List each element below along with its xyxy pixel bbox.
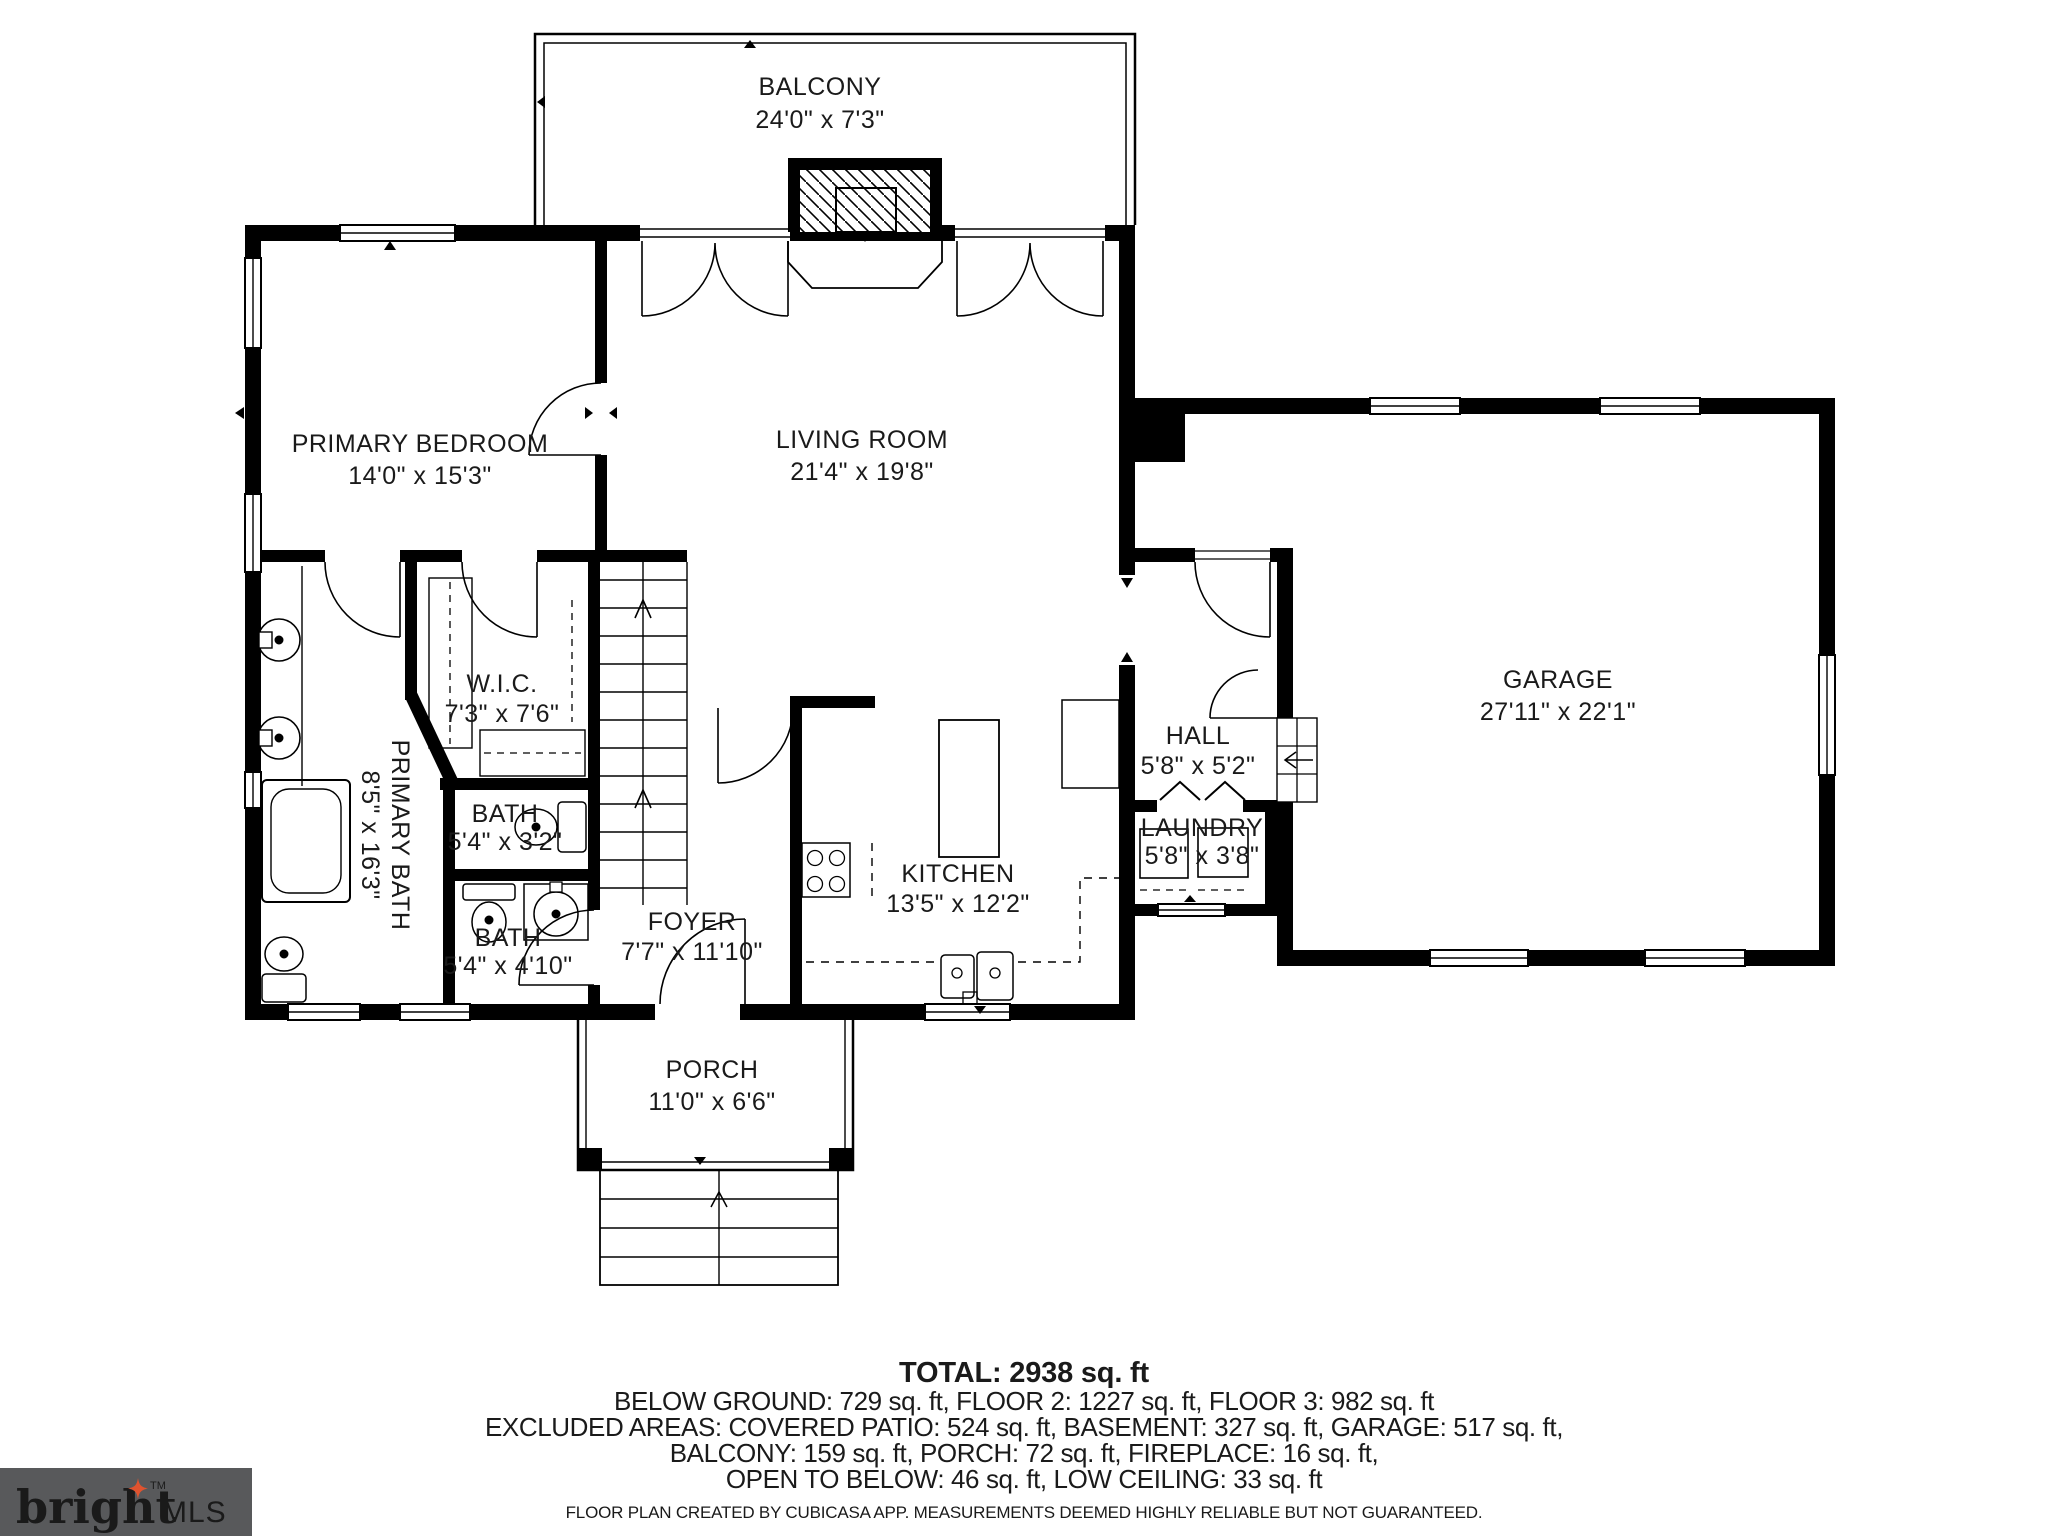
room-label-hall: HALL: [1166, 722, 1231, 750]
room-dims-garage: 27'11" x 22'1": [1480, 698, 1636, 726]
room-label-laundry: LAUNDRY: [1141, 814, 1264, 842]
room-dims-foyer: 7'7" x 11'10": [621, 938, 763, 966]
room-dims-primary-bedroom: 14'0" x 15'3": [348, 462, 492, 490]
porch-post: [829, 1148, 853, 1170]
logo-mls-text: MLS: [162, 1496, 227, 1529]
summary-line4: OPEN TO BELOW: 46 sq. ft, LOW CEILING: 3…: [726, 1464, 1324, 1494]
bright-mls-logo: bright TM MLS: [0, 1468, 252, 1536]
porch-post: [578, 1148, 602, 1170]
room-label-wic: W.I.C.: [466, 670, 537, 698]
room-label-kitchen: KITCHEN: [901, 860, 1014, 888]
room-dims-balcony: 24'0" x 7'3": [755, 106, 884, 134]
summary-total: TOTAL: 2938 sq. ft: [899, 1357, 1149, 1389]
room-dims-living-room: 21'4" x 19'8": [790, 458, 934, 486]
room-label-balcony: BALCONY: [759, 73, 882, 101]
room-label-garage: GARAGE: [1503, 666, 1613, 694]
logo-tm-text: TM: [150, 1480, 166, 1492]
room-label-primary-bedroom: PRIMARY BEDROOM: [292, 430, 549, 458]
room-label-bath2: BATH: [475, 924, 542, 952]
room-dims-bath2: 5'4" x 4'10": [443, 952, 572, 980]
disclaimer-text: FLOOR PLAN CREATED BY CUBICASA APP. MEAS…: [566, 1503, 1483, 1522]
room-dims-hall: 5'8" x 5'2": [1141, 752, 1256, 780]
room-label-bath1: BATH: [472, 800, 539, 828]
room-dims-porch: 11'0" x 6'6": [648, 1088, 775, 1116]
room-label-living-room: LIVING ROOM: [776, 426, 948, 454]
floor-plan-svg: BALCONY 24'0" x 7'3" PRIMARY BEDROOM 14'…: [0, 0, 2048, 1536]
room-dims-bath1: 5'4" x 3'2": [448, 828, 563, 856]
room-dims-laundry: 5'8" x 3'8": [1145, 842, 1260, 870]
room-label-foyer: FOYER: [648, 908, 737, 936]
room-dims-primary-bath: 8'5" x 16'3": [356, 770, 384, 899]
floor-plan-page: BALCONY 24'0" x 7'3" PRIMARY BEDROOM 14'…: [0, 0, 2048, 1536]
room-dims-wic: 7'3" x 7'6": [445, 700, 560, 728]
room-label-primary-bath: PRIMARY BATH: [386, 740, 414, 931]
room-dims-kitchen: 13'5" x 12'2": [886, 890, 1030, 918]
room-label-porch: PORCH: [666, 1056, 759, 1084]
